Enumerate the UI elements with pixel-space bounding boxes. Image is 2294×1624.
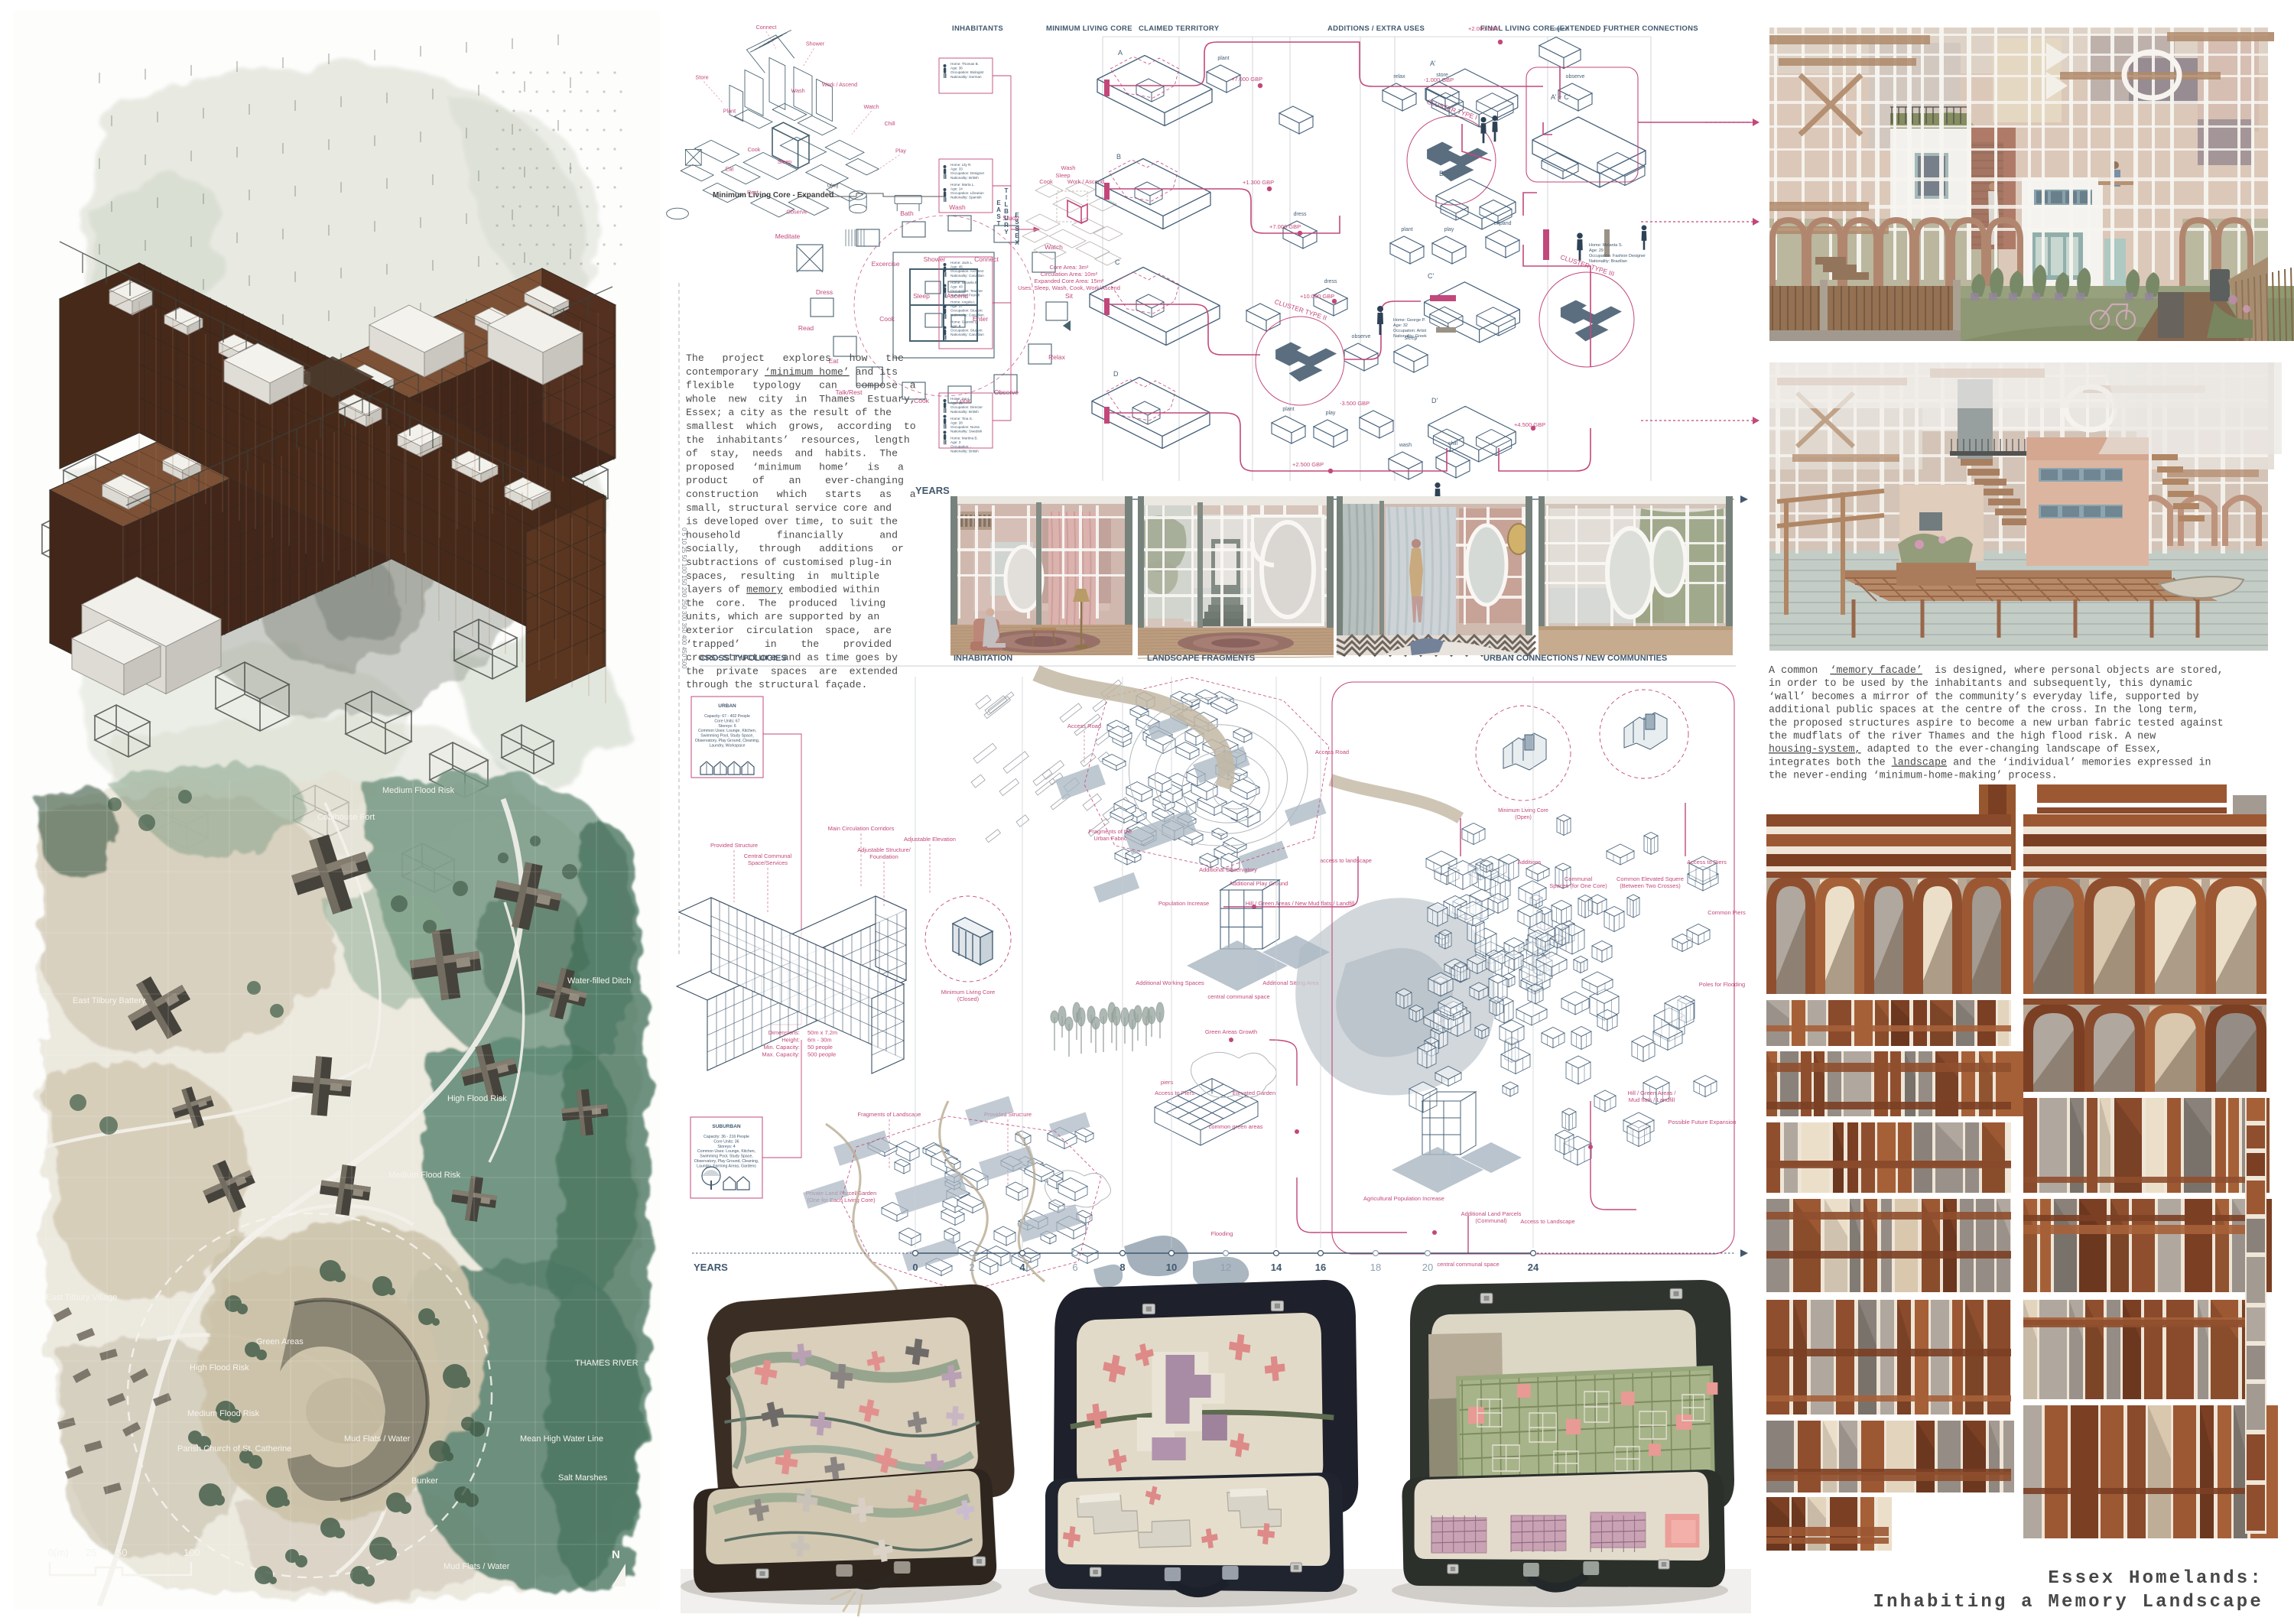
svg-text:S: S: [996, 213, 1001, 220]
svg-text:SUBURBAN: SUBURBAN: [712, 1124, 741, 1129]
svg-text:S: S: [1015, 219, 1019, 226]
svg-text:Home: Micaela E.: Home: Micaela E.: [950, 281, 978, 284]
svg-text:(Between Two Crosses): (Between Two Crosses): [1620, 882, 1681, 889]
svg-text:observe: observe: [1352, 334, 1371, 339]
svg-text:A’: A’: [1430, 60, 1435, 67]
svg-text:0(m): 0(m): [827, 184, 838, 189]
svg-text:Access to Piers: Access to Piers: [1687, 859, 1727, 866]
svg-text:Home: Thomas B.: Home: Thomas B.: [950, 62, 979, 66]
svg-text:Height:: Height:: [781, 1037, 800, 1044]
svg-text:Observe: Observe: [786, 208, 807, 215]
svg-text:Additional Working Spaces: Additional Working Spaces: [1136, 979, 1204, 986]
svg-text:+2.000 GBP: +2.000 GBP: [1468, 25, 1500, 32]
svg-text:plant: plant: [1282, 407, 1294, 412]
svg-text:Mud flats / Landfill: Mud flats / Landfill: [1629, 1096, 1675, 1103]
svg-text:FURTHER CONNECTIONS: FURTHER CONNECTIONS: [1604, 24, 1698, 33]
svg-text:proposed ‘minimum home’: proposed ‘minimum home’ is a: [686, 461, 904, 473]
svg-text:50 people: 50 people: [807, 1044, 833, 1051]
svg-text:6m - 30m: 6m - 30m: [807, 1037, 832, 1044]
svg-text:the inhabitants’ resources,: the inhabitants’ resources, length: [686, 434, 910, 446]
svg-text:Read: Read: [798, 324, 814, 332]
svg-text:Home: Jack L.: Home: Jack L.: [950, 261, 973, 265]
svg-text:B’: B’: [1439, 170, 1445, 177]
svg-text:T: T: [1005, 187, 1009, 194]
svg-text:Sleep: Sleep: [913, 292, 930, 300]
svg-text:Green Areas Growth: Green Areas Growth: [1205, 1028, 1257, 1035]
svg-text:Capacity: 36 - 216 People: Capacity: 36 - 216 People: [703, 1135, 749, 1139]
svg-text:Foundation: Foundation: [869, 853, 898, 860]
svg-text:Communal: Communal: [1565, 875, 1593, 882]
svg-text:Common Piers: Common Piers: [1708, 909, 1746, 916]
svg-text:Water-filled Ditch: Water-filled Ditch: [567, 976, 631, 986]
svg-text:connect: connect: [1551, 27, 1570, 32]
svg-text:Urban Fabric: Urban Fabric: [1093, 835, 1127, 842]
svg-text:50: 50: [116, 1547, 127, 1558]
svg-text:Cook: Cook: [748, 146, 761, 153]
svg-text:Age: 33: Age: 33: [950, 167, 963, 171]
svg-text:A: A: [996, 206, 1001, 213]
svg-text:Occupation: Teacher: Occupation: Teacher: [950, 289, 983, 293]
svg-text:access to landscape: access to landscape: [1320, 857, 1372, 864]
svg-text:Store: Store: [695, 73, 708, 80]
svg-text:Minimum Living Core: Minimum Living Core: [941, 989, 995, 996]
svg-text:is developed over time, to sui: is developed over time, to suit the: [686, 516, 898, 528]
svg-text:Home: Angela L.: Home: Angela L.: [950, 300, 976, 304]
svg-text:CROSS TYPOLOGIES: CROSS TYPOLOGIES: [700, 654, 787, 663]
svg-text:20: 20: [1422, 1262, 1433, 1273]
svg-text:High Flood Risk: High Flood Risk: [447, 1094, 507, 1103]
svg-text:Elevated Garden: Elevated Garden: [1233, 1090, 1275, 1096]
svg-text:Sleep: Sleep: [778, 158, 791, 165]
svg-text:flexible typology can co: flexible typology can compose a: [686, 380, 916, 391]
svg-text:Observe: Observe: [994, 388, 1019, 396]
svg-text:Sit: Sit: [1065, 292, 1074, 300]
svg-text:LANDSCAPE FRAGMENTS: LANDSCAPE FRAGMENTS: [1147, 654, 1255, 663]
svg-text:Common Uses: Lounge, Kitchen,: Common Uses: Lounge, Kitchen,: [698, 729, 756, 733]
svg-text:Nationality: British: Nationality: British: [950, 176, 979, 180]
svg-text:Core Units: 67: Core Units: 67: [714, 719, 739, 723]
svg-text:East Tilbury Battery: East Tilbury Battery: [73, 996, 146, 1005]
svg-text:Home: Lily R.: Home: Lily R.: [950, 163, 972, 167]
svg-text:Nationality: Canadian: Nationality: Canadian: [950, 313, 984, 317]
svg-text:Bunker: Bunker: [411, 1476, 438, 1486]
svg-text:smallest which grows, accor: smallest which grows, according to: [686, 421, 916, 432]
svg-text:-3.500 GBP: -3.500 GBP: [1340, 400, 1370, 407]
svg-text:Home: Ian L.: Home: Ian L.: [950, 397, 970, 401]
svg-text:Occupation: Fashion Designer: Occupation: Fashion Designer: [1589, 254, 1646, 258]
svg-text:Age: 14: Age: 14: [950, 187, 963, 190]
svg-text:the never-ending ‘minimum-home: the never-ending ‘minimum-home-making’ p…: [1769, 771, 2058, 782]
svg-text:E: E: [1015, 232, 1019, 239]
svg-text:Hill / Green Areas /: Hill / Green Areas /: [1628, 1090, 1677, 1096]
svg-text:24: 24: [1528, 1262, 1539, 1273]
svg-text:Age: 31: Age: 31: [950, 401, 963, 405]
svg-text:Poles for Flooding: Poles for Flooding: [1699, 981, 1745, 988]
svg-text:Core Units: 36: Core Units: 36: [713, 1139, 739, 1144]
svg-text:units, which are supported by: units, which are supported by an: [686, 611, 879, 622]
svg-text:8: 8: [1119, 1262, 1125, 1273]
svg-text:Minimum Living Core: Minimum Living Core: [1498, 808, 1548, 814]
svg-text:T: T: [997, 220, 1001, 227]
svg-text:Connect: Connect: [974, 255, 999, 263]
svg-text:Nationality: Brazilian: Nationality: Brazilian: [1589, 259, 1627, 264]
svg-text:Occupation: Nurse: Occupation: Nurse: [950, 425, 980, 429]
svg-text:play: play: [1444, 227, 1454, 232]
svg-text:Possible Future Expansion: Possible Future Expansion: [1668, 1119, 1736, 1125]
svg-text:Spaces (for One Core): Spaces (for One Core): [1549, 882, 1607, 889]
svg-text:Fragments of Landscape: Fragments of Landscape: [858, 1111, 921, 1118]
svg-text:Mean High Water Line: Mean High Water Line: [520, 1434, 603, 1444]
svg-text:+2.500 GBP: +2.500 GBP: [1292, 461, 1324, 468]
svg-text:wash: wash: [1399, 443, 1412, 448]
svg-text:Laundry, Farming Areas, Garden: Laundry, Farming Areas, Gardens: [697, 1164, 756, 1168]
svg-text:100: 100: [184, 1547, 200, 1558]
svg-text:Storeys: 6: Storeys: 6: [718, 724, 736, 729]
svg-text:25: 25: [86, 1547, 96, 1558]
svg-text:Medium Flood Risk: Medium Flood Risk: [187, 1409, 260, 1418]
svg-text:B: B: [1116, 153, 1121, 161]
svg-text:Access Road: Access Road: [1067, 723, 1101, 729]
svg-text:Relax: Relax: [1048, 353, 1065, 361]
svg-text:The project explores how: The project explores how the: [686, 352, 904, 364]
svg-text:50m x 7.2m: 50m x 7.2m: [807, 1029, 837, 1036]
svg-text:N: N: [612, 1548, 620, 1561]
svg-text:U: U: [1004, 215, 1009, 222]
svg-text:R: R: [1004, 222, 1009, 229]
svg-text:Additional Observatory: Additional Observatory: [1199, 866, 1257, 873]
svg-text:Min. Capacity:: Min. Capacity:: [763, 1044, 800, 1051]
svg-text:Occupation: Student: Occupation: Student: [950, 309, 983, 313]
svg-text:THAMES RIVER: THAMES RIVER: [575, 1359, 638, 1368]
svg-text:socially, through addition: socially, through additions or: [686, 543, 904, 554]
svg-text:Nationality: British: Nationality: British: [950, 410, 979, 414]
svg-text:E: E: [996, 200, 1001, 206]
svg-text:Adjustable Elevation: Adjustable Elevation: [904, 836, 956, 843]
svg-text:contemporary ‘minimum home’ an: contemporary ‘minimum home’ and its: [686, 366, 898, 378]
svg-text:through the structural façade.: through the structural façade.: [686, 679, 867, 690]
svg-text:spaces, resulting in multip: spaces, resulting in multiple: [686, 570, 879, 582]
svg-text:plant: plant: [1401, 227, 1412, 232]
svg-text:0: 0: [912, 1262, 918, 1273]
svg-text:INHABITATION: INHABITATION: [954, 654, 1012, 663]
svg-text:Shower: Shower: [924, 255, 946, 263]
svg-text:Circulation Area: 10m²: Circulation Area: 10m²: [1041, 271, 1098, 278]
svg-text:URBAN CONNECTIONS / NEW COMMUN: URBAN CONNECTIONS / NEW COMMUNITIES: [1483, 654, 1667, 663]
svg-text:Wash: Wash: [1061, 164, 1076, 171]
svg-text:D’: D’: [1431, 397, 1438, 404]
svg-text:4: 4: [1019, 1262, 1025, 1273]
svg-text:Home: Marta L.: Home: Marta L.: [950, 183, 975, 187]
svg-text:Fragments of the: Fragments of the: [1089, 828, 1132, 835]
svg-text:Nationality: Canadian: Nationality: Canadian: [950, 274, 984, 278]
svg-text:integrates both the landscape: integrates both the landscape and the ‘i…: [1769, 757, 2211, 768]
svg-text:the core. The produced liv: the core. The produced living: [686, 597, 885, 609]
svg-text:0(m): 0(m): [48, 1547, 69, 1558]
svg-text:Nationality: British: Nationality: British: [950, 449, 979, 453]
svg-text:Meditate: Meditate: [775, 232, 801, 240]
svg-text:+1.300 GBP: +1.300 GBP: [1243, 179, 1274, 186]
svg-text:Home: Giannis L.: Home: Giannis L.: [950, 320, 978, 323]
svg-text:Additional Land Parcels: Additional Land Parcels: [1461, 1210, 1522, 1217]
svg-text:Connect: Connect: [756, 24, 777, 31]
svg-text:common green areas: common green areas: [1209, 1123, 1263, 1130]
svg-text:Excercise: Excercise: [872, 260, 900, 268]
svg-text:Occupation: Artist: Occupation: Artist: [1393, 329, 1427, 333]
svg-text:L: L: [1005, 201, 1009, 208]
svg-text:‘trapped’ in the prov: ‘trapped’ in the provided: [686, 638, 892, 650]
svg-text:A’ + C’: A’ + C’: [1551, 93, 1571, 101]
svg-text:dress: dress: [1324, 279, 1337, 284]
svg-text:construction which starts: construction which starts as a: [686, 489, 916, 500]
svg-text:Age: 36: Age: 36: [950, 67, 963, 70]
svg-text:of stay, needs and habits.: of stay, needs and habits. The: [686, 448, 898, 460]
svg-text:Home: Melanta S.: Home: Melanta S.: [1589, 243, 1623, 248]
svg-text:Nationality: Swedish: Nationality: Swedish: [950, 430, 983, 434]
svg-text:Main Circulation Corridors: Main Circulation Corridors: [828, 825, 895, 832]
svg-text:the mudflats of the river Tham: the mudflats of the river Thames and the…: [1769, 731, 2156, 742]
svg-text:play: play: [1326, 411, 1336, 416]
svg-text:C: C: [1115, 258, 1120, 266]
svg-text:Eat: Eat: [726, 165, 734, 172]
svg-text:+7.000 GBP: +7.000 GBP: [1269, 223, 1301, 230]
svg-text:Mud Flats / Water: Mud Flats / Water: [344, 1434, 411, 1444]
svg-text:2: 2: [969, 1262, 974, 1273]
svg-text:Mud Flats / Water: Mud Flats / Water: [444, 1562, 510, 1571]
svg-text:central communal space: central communal space: [1207, 993, 1269, 1000]
svg-text:Minimum Living Core - Expanded: Minimum Living Core - Expanded: [713, 191, 833, 200]
svg-text:Home: Tina S.: Home: Tina S.: [950, 417, 973, 421]
svg-text:6: 6: [1072, 1262, 1077, 1273]
svg-text:D: D: [1113, 370, 1119, 378]
svg-text:-1.000 GBP: -1.000 GBP: [1424, 76, 1454, 83]
svg-text:Agricultural Population Increa: Agricultural Population Increase: [1363, 1195, 1444, 1202]
svg-text:YEARS: YEARS: [694, 1262, 728, 1273]
svg-text:B: B: [1004, 208, 1009, 215]
svg-text:Occupation: Librarian: Occupation: Librarian: [950, 191, 984, 195]
svg-text:Medium Flood Risk: Medium Flood Risk: [388, 1171, 461, 1180]
svg-text:central communal space: central communal space: [1437, 1261, 1499, 1268]
svg-text:exterior circulation space,: exterior circulation space, are: [686, 625, 892, 636]
svg-text:10: 10: [1166, 1262, 1177, 1273]
svg-text:household financially: household financially and: [686, 529, 898, 541]
svg-text:Max. Capacity:: Max. Capacity:: [762, 1051, 800, 1058]
svg-text:whole new city in Thames: whole new city in Thames Estuary,: [686, 393, 916, 404]
svg-text:Observatory, Play Ground, Clea: Observatory, Play Ground, Cleaning,: [695, 739, 759, 743]
svg-text:Medium Flood Risk: Medium Flood Risk: [382, 786, 455, 795]
svg-text:Hill / Green Areas / New Mud f: Hill / Green Areas / New Mud flats / Lan…: [1246, 900, 1355, 907]
svg-text:plant: plant: [1217, 56, 1229, 61]
svg-text:product of an ever-ch: product of an ever-changing: [686, 475, 904, 486]
svg-text:Green Areas: Green Areas: [256, 1337, 304, 1346]
svg-text:Coalhouse Fort: Coalhouse Fort: [317, 813, 375, 822]
svg-text:Core Area: 3m²: Core Area: 3m²: [1050, 264, 1089, 271]
svg-text:Laundry, Workspace: Laundry, Workspace: [709, 743, 745, 748]
svg-text:Flooding: Flooding: [1211, 1230, 1233, 1237]
svg-text:Age: 3: Age: 3: [950, 440, 961, 444]
svg-text:Uses: Sleep, Wash, Cook, Work/: Uses: Sleep, Wash, Cook, Work/Ascend: [1018, 284, 1120, 291]
svg-text:Salt Marshes: Salt Marshes: [558, 1473, 608, 1483]
svg-text:Common Uses: Lounge, Kitchen,: Common Uses: Lounge, Kitchen,: [697, 1149, 755, 1154]
svg-text:Age: 8: Age: 8: [950, 324, 961, 328]
svg-text:Occupation: Student: Occupation: Student: [950, 329, 983, 333]
svg-text:E: E: [1015, 212, 1019, 219]
svg-text:+10.000 GBP: +10.000 GBP: [1300, 293, 1334, 300]
svg-text:Inhabiting a Memory Landscape: Inhabiting a Memory Landscape: [1873, 1592, 2263, 1613]
svg-text:relax: relax: [1393, 74, 1405, 80]
svg-text:Central Communal: Central Communal: [744, 853, 792, 859]
svg-text:INHABITANTS: INHABITANTS: [952, 24, 1003, 33]
svg-text:additional public spaces at th: additional public spaces at the centre o…: [1769, 705, 2199, 716]
svg-text:Chill: Chill: [885, 120, 895, 127]
svg-text:Storeys: 4: Storeys: 4: [717, 1145, 735, 1149]
svg-text:Capacity: 67 - 402 People: Capacity: 67 - 402 People: [704, 714, 750, 719]
svg-text:Nationality: Spanish: Nationality: Spanish: [950, 196, 982, 200]
svg-text:Space/Services: Space/Services: [748, 859, 788, 866]
svg-text:Nationality: Greek: Nationality: Greek: [1393, 334, 1427, 339]
svg-text:Common Elevated Squere: Common Elevated Squere: [1617, 875, 1684, 882]
svg-text:URBAN: URBAN: [718, 703, 736, 709]
svg-text:18: 18: [1370, 1262, 1381, 1273]
svg-text:+7.000 GBP: +7.000 GBP: [1231, 76, 1262, 83]
svg-text:(Communal): (Communal): [1475, 1217, 1507, 1224]
svg-text:‘wall’ becomes a mirror of the: ‘wall’ becomes a mirror of the community…: [1769, 691, 2199, 703]
svg-text:Bath: Bath: [900, 209, 914, 217]
svg-text:Age: 32: Age: 32: [1393, 323, 1408, 328]
svg-text:Additions: Additions: [1518, 859, 1542, 866]
svg-text:Provided Structure: Provided Structure: [710, 842, 758, 849]
svg-text:CLAIMED TERRITORY: CLAIMED TERRITORY: [1139, 24, 1220, 33]
svg-text:Home: George P.: Home: George P.: [1393, 318, 1426, 323]
svg-text:Occupation: Director: Occupation: Director: [950, 405, 983, 409]
svg-text:12: 12: [1220, 1262, 1231, 1273]
svg-text:the private spaces are ext: the private spaces are extended: [686, 665, 898, 677]
svg-text:Cook: Cook: [879, 315, 895, 323]
svg-text:I: I: [1006, 194, 1007, 201]
svg-text:(Open): (Open): [1515, 815, 1532, 820]
svg-text:Occupation: Biologist: Occupation: Biologist: [950, 70, 984, 74]
svg-text:Cook: Cook: [914, 397, 930, 404]
svg-text:Work / Ascend: Work / Ascend: [822, 81, 857, 88]
svg-text:Age: 43: Age: 43: [950, 284, 963, 288]
svg-text:Nationality: French: Nationality: French: [950, 294, 980, 297]
svg-text:Shower: Shower: [806, 40, 825, 47]
svg-text:Essex Homelands:: Essex Homelands:: [2048, 1568, 2263, 1589]
svg-text:Age: 17: Age: 17: [950, 304, 963, 308]
svg-text:Dimensions:: Dimensions:: [768, 1029, 800, 1036]
svg-text:Play: Play: [895, 147, 906, 154]
svg-text:Occupation: -: Occupation: -: [950, 445, 972, 449]
svg-text:16: 16: [1315, 1262, 1326, 1273]
svg-text:Age: 29: Age: 29: [1589, 248, 1604, 253]
svg-text:subtractions of customised plu: subtractions of customised plug-in: [686, 557, 892, 568]
svg-text:X: X: [1015, 239, 1019, 246]
svg-text:Population Increase: Population Increase: [1158, 900, 1209, 907]
svg-text:small, structural service core: small, structural service core and: [686, 502, 892, 514]
svg-text:Nationality: German: Nationality: German: [950, 75, 982, 79]
svg-text:YEARS: YEARS: [915, 485, 950, 496]
svg-text:observe: observe: [1566, 74, 1585, 80]
svg-text:Observatory, Play Ground, Clea: Observatory, Play Ground, Cleaning,: [694, 1159, 759, 1164]
svg-text:layers of memory embodied with: layers of memory embodied within: [686, 584, 879, 596]
svg-text:Cook: Cook: [1039, 178, 1053, 185]
svg-text:Sleep: Sleep: [1055, 172, 1070, 179]
svg-text:Dress: Dress: [816, 288, 833, 296]
svg-text:MINIMUM LIVING CORE: MINIMUM LIVING CORE: [1046, 24, 1132, 33]
svg-text:(Closed): (Closed): [957, 996, 980, 1002]
svg-text:+4.500 GBP: +4.500 GBP: [1514, 421, 1545, 428]
svg-text:A common ‘memory facade’ is: A common ‘memory facade’ is designed, wh…: [1769, 665, 2224, 677]
svg-text:dress: dress: [1293, 212, 1307, 217]
svg-text:Nationality: Canadian: Nationality: Canadian: [950, 333, 984, 336]
svg-text:C’: C’: [1428, 272, 1435, 280]
svg-text:500 people: 500 people: [807, 1051, 836, 1058]
svg-text:Occupation: Designer: Occupation: Designer: [950, 171, 985, 175]
svg-text:East Tilbury Village: East Tilbury Village: [46, 1293, 117, 1302]
svg-text:Wash: Wash: [949, 203, 966, 211]
svg-text:Swimming Pool, Study Space,: Swimming Pool, Study Space,: [700, 734, 754, 739]
svg-text:ADDITIONS / EXTRA USES: ADDITIONS / EXTRA USES: [1327, 24, 1425, 33]
svg-text:Watch: Watch: [864, 103, 879, 110]
svg-text:Access to Landscape: Access to Landscape: [1520, 1218, 1574, 1225]
svg-text:Essex; a city as the result of: Essex; a city as the result of the: [686, 407, 892, 418]
svg-text:S: S: [1015, 226, 1019, 232]
svg-text:Y: Y: [1004, 229, 1009, 235]
svg-text:Home: Martina B.: Home: Martina B.: [950, 437, 978, 440]
svg-text:housing-system, adapted to the: housing-system, adapted to the ever-chan…: [1769, 744, 2162, 755]
svg-text:in order to be used by the inh: in order to be used by the inhabitants a…: [1769, 678, 2192, 690]
svg-text:Swimming Pool, Study Space,: Swimming Pool, Study Space,: [700, 1155, 753, 1159]
svg-text:Age: 28: Age: 28: [950, 421, 963, 424]
svg-text:the proposed structures aspire: the proposed structures aspire to become…: [1769, 718, 2224, 729]
svg-text:Wash: Wash: [791, 87, 805, 94]
svg-text:Plant: Plant: [723, 107, 736, 114]
svg-text:Adjustable Structure/: Adjustable Structure/: [857, 846, 911, 853]
svg-text:Expanded Core Area: 15m²: Expanded Core Area: 15m²: [1035, 278, 1104, 284]
svg-text:Occupation: Architect: Occupation: Architect: [950, 269, 984, 273]
svg-text:Parish Church of St. Catherine: Parish Church of St. Catherine: [177, 1444, 291, 1453]
svg-text:A: A: [1118, 49, 1123, 57]
svg-text:High Flood Risk: High Flood Risk: [190, 1363, 249, 1372]
svg-text:14: 14: [1271, 1262, 1282, 1273]
svg-text:Age: 45: Age: 45: [950, 265, 963, 269]
